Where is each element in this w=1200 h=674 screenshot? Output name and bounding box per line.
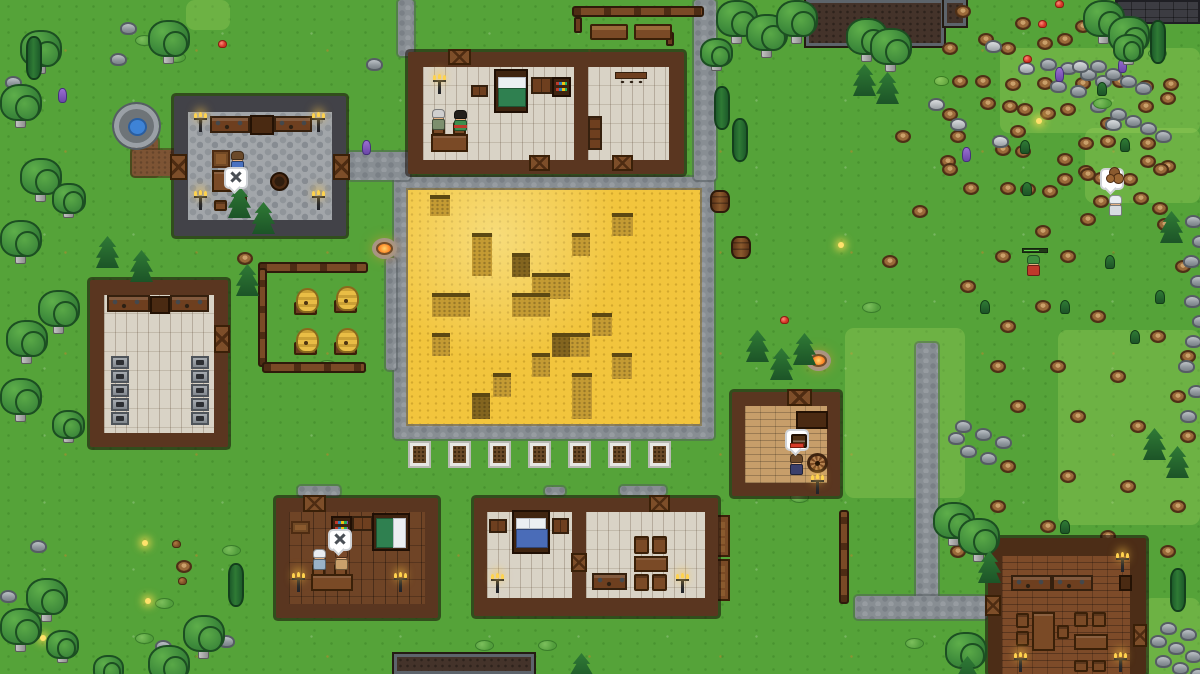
gravel-path (916, 343, 938, 601)
candelabra (811, 474, 824, 494)
firefly-glow (838, 242, 844, 248)
tree-stump[interactable] (995, 250, 1011, 263)
tree-stump[interactable] (1150, 330, 1166, 343)
building-storehouse[interactable] (90, 280, 228, 447)
barrel[interactable] (731, 236, 751, 259)
rock[interactable] (1180, 410, 1197, 423)
tree-canopy (885, 39, 910, 66)
speech-bubble[interactable] (785, 429, 809, 451)
door[interactable] (649, 495, 670, 512)
candelabra (1116, 552, 1129, 572)
rock[interactable] (1185, 335, 1200, 348)
pine-tree[interactable] (770, 348, 793, 380)
rock[interactable] (995, 436, 1012, 449)
tree-canopy (21, 331, 46, 358)
villager[interactable] (431, 109, 446, 130)
bush (222, 545, 241, 556)
tree-stump[interactable] (1152, 202, 1168, 215)
door[interactable] (303, 495, 326, 512)
chair (1092, 612, 1106, 627)
tree-stump[interactable] (882, 255, 898, 268)
tree-stump[interactable] (1170, 500, 1186, 513)
sapling (1155, 290, 1165, 304)
tree[interactable] (0, 220, 38, 264)
candelabra-arm (312, 196, 325, 198)
tree-stump[interactable] (1090, 310, 1106, 323)
rock[interactable] (1140, 122, 1157, 135)
shelf (250, 115, 274, 135)
rock[interactable] (955, 420, 972, 433)
candelabra-arm (194, 118, 207, 120)
candle-flame (438, 74, 441, 79)
tree-stump[interactable] (952, 75, 968, 88)
candelabra-stem (496, 580, 499, 593)
rock[interactable] (120, 22, 137, 35)
speech-bubble[interactable] (224, 167, 248, 189)
furnace-slot (196, 402, 204, 407)
harvested-patch[interactable] (472, 393, 490, 419)
harvested-patch[interactable] (612, 213, 633, 236)
tree[interactable] (0, 608, 38, 652)
harvested-patch[interactable] (512, 293, 550, 317)
cabinet (352, 516, 373, 531)
tree-stump[interactable] (1180, 430, 1196, 443)
candelabra (1014, 652, 1027, 672)
villager[interactable] (1108, 195, 1123, 216)
tree-stump[interactable] (1040, 520, 1056, 533)
rock[interactable] (960, 445, 977, 458)
candelabra-stem (816, 481, 819, 494)
rock[interactable] (1184, 295, 1200, 308)
game-map[interactable] (0, 0, 1200, 674)
tree-stump[interactable] (1080, 168, 1096, 181)
campfire-flame (378, 244, 391, 253)
rock[interactable] (1018, 62, 1035, 75)
mushroom (1038, 20, 1047, 28)
villager-body (790, 464, 803, 475)
tree-stump[interactable] (1002, 100, 1018, 113)
tree-stump[interactable] (1060, 103, 1076, 116)
tree-stump[interactable] (237, 252, 253, 265)
harvested-patch[interactable] (612, 353, 632, 379)
tree-stump[interactable] (1005, 78, 1021, 91)
beehive[interactable] (334, 286, 357, 313)
villager-hair (432, 109, 445, 118)
tree-stump[interactable] (1037, 37, 1053, 50)
door[interactable] (170, 154, 187, 180)
tree[interactable] (183, 615, 221, 659)
villager-body (313, 559, 326, 570)
well[interactable] (114, 104, 159, 148)
barrel (292, 196, 308, 212)
beehive[interactable] (294, 288, 317, 315)
villager-hair (1027, 255, 1040, 264)
tree[interactable] (0, 378, 38, 422)
pine-tree[interactable] (570, 653, 593, 674)
rock[interactable] (980, 452, 997, 465)
tree-stump[interactable] (1010, 400, 1026, 413)
tree-stump[interactable] (1000, 460, 1016, 473)
tree[interactable] (52, 410, 81, 443)
chair (1016, 631, 1029, 646)
rock[interactable] (1190, 275, 1200, 288)
door[interactable] (1133, 624, 1147, 647)
rock[interactable] (948, 432, 965, 445)
planter-soil (719, 564, 725, 596)
pine-tree[interactable] (793, 333, 816, 365)
tree-stump[interactable] (1057, 153, 1073, 166)
tree-stump[interactable] (1070, 410, 1086, 423)
candle-flame (317, 112, 320, 117)
cypress-tree[interactable] (1150, 20, 1166, 64)
tree-stump[interactable] (1100, 135, 1116, 148)
door[interactable] (214, 325, 230, 353)
candelabra-arm (1116, 558, 1129, 560)
chair (1092, 660, 1106, 672)
planter-soil (719, 520, 725, 552)
rock[interactable] (975, 428, 992, 441)
building-cottage-a[interactable] (276, 498, 438, 618)
tree-stump[interactable] (942, 42, 958, 55)
fencev (258, 268, 267, 367)
speech-bubble[interactable] (1100, 168, 1124, 190)
harvested-patch[interactable] (430, 195, 450, 216)
barrel (749, 416, 769, 435)
seed-tray[interactable] (528, 441, 551, 468)
tree[interactable] (148, 20, 186, 64)
door[interactable] (333, 154, 350, 180)
tree-stump[interactable] (1057, 33, 1073, 46)
gravel-path (398, 0, 414, 56)
cypress-tree[interactable] (228, 563, 244, 607)
barrel (592, 77, 609, 94)
seed-tray[interactable] (648, 441, 671, 468)
barrel[interactable] (710, 190, 730, 213)
tree-stump[interactable] (990, 360, 1006, 373)
tree-canopy (791, 11, 816, 38)
harvested-patch[interactable] (532, 353, 550, 377)
tree-stump[interactable] (1122, 173, 1138, 186)
gravel-path (620, 486, 666, 495)
tree-stump[interactable] (975, 75, 991, 88)
pine-tree[interactable] (876, 72, 899, 104)
rock[interactable] (0, 590, 17, 603)
tree-canopy (15, 231, 40, 258)
mushroom (780, 316, 789, 324)
logs-icon (1106, 174, 1115, 183)
tree[interactable] (870, 28, 908, 72)
table (311, 574, 353, 591)
seed-tray-soil (413, 446, 426, 463)
seed-tray[interactable] (608, 441, 631, 468)
seed-tray[interactable] (448, 441, 471, 468)
fenceh (258, 262, 368, 273)
tree-stump[interactable] (1000, 182, 1016, 195)
harvested-patch[interactable] (472, 233, 492, 276)
pine-tree[interactable] (746, 330, 769, 362)
tree-stump[interactable] (1050, 360, 1066, 373)
cypress-tree[interactable] (1170, 568, 1186, 612)
harvested-patch[interactable] (432, 293, 470, 317)
building-cottage-b[interactable] (474, 498, 718, 616)
villager-body (1027, 265, 1040, 276)
tree-stump[interactable] (895, 130, 911, 143)
villager[interactable] (1026, 255, 1041, 276)
tree-stump[interactable] (942, 163, 958, 176)
door[interactable] (448, 49, 471, 65)
harvested-patch[interactable] (592, 313, 612, 336)
rock[interactable] (928, 98, 945, 111)
rock[interactable] (1150, 635, 1167, 648)
rock[interactable] (1105, 118, 1122, 131)
chair (634, 574, 649, 591)
tree-stump[interactable] (1060, 250, 1076, 263)
rock[interactable] (1155, 655, 1172, 668)
harvested-patch[interactable] (572, 233, 590, 256)
excavated-ground[interactable] (394, 654, 534, 674)
tree-stump[interactable] (963, 182, 979, 195)
tree-canopy (163, 31, 188, 58)
door[interactable] (787, 389, 812, 406)
furnace (191, 384, 209, 397)
tree[interactable] (776, 0, 814, 44)
table (1074, 634, 1108, 650)
tree-stump[interactable] (1140, 137, 1156, 150)
tree[interactable] (93, 655, 120, 674)
bush (475, 640, 494, 651)
campfire[interactable] (372, 238, 397, 259)
coatrack (615, 72, 647, 87)
tree-stump[interactable] (990, 500, 1006, 513)
tree-stump[interactable] (912, 205, 928, 218)
beehive[interactable] (334, 328, 357, 355)
candelabra (292, 572, 305, 592)
harvested-patch[interactable] (552, 333, 570, 357)
furnace (191, 412, 209, 425)
counter (274, 116, 312, 132)
tree-stump[interactable] (1040, 107, 1056, 120)
tree-stump[interactable] (1080, 213, 1096, 226)
rock[interactable] (366, 58, 383, 71)
tree-stump[interactable] (1042, 185, 1058, 198)
candelabra-arm (194, 196, 207, 198)
book-row (556, 82, 567, 85)
tree-stump[interactable] (176, 560, 192, 573)
rock[interactable] (1155, 130, 1172, 143)
rock[interactable] (1178, 360, 1195, 373)
rock[interactable] (1185, 650, 1200, 663)
rock[interactable] (1192, 315, 1200, 328)
rock[interactable] (1192, 235, 1200, 248)
sapling (1097, 82, 1107, 96)
barrel (749, 455, 769, 473)
tree-stump[interactable] (1035, 300, 1051, 313)
mushroom (178, 577, 187, 585)
tree-stump[interactable] (1160, 545, 1176, 558)
harvested-patch[interactable] (572, 373, 592, 419)
rock[interactable] (1040, 58, 1057, 71)
tree-stump[interactable] (1133, 192, 1149, 205)
pine-tree[interactable] (96, 236, 119, 268)
door[interactable] (529, 155, 550, 171)
rock[interactable] (110, 53, 127, 66)
candelabra-stem (399, 579, 402, 592)
counter (1052, 575, 1093, 591)
candelabra (312, 190, 325, 210)
door[interactable] (612, 155, 633, 171)
rock[interactable] (1190, 668, 1200, 674)
tree-stump[interactable] (1170, 390, 1186, 403)
slime[interactable] (934, 76, 949, 86)
rock[interactable] (1180, 628, 1197, 641)
rock[interactable] (1160, 622, 1177, 635)
pine-tree[interactable] (236, 264, 259, 296)
tree-stump[interactable] (1078, 137, 1094, 150)
rock[interactable] (992, 135, 1009, 148)
tree-stump[interactable] (1153, 163, 1169, 176)
villager-hair (790, 454, 803, 463)
tree-stump[interactable] (1160, 92, 1176, 105)
rock[interactable] (1090, 60, 1107, 73)
harvested-patch[interactable] (493, 373, 511, 397)
tree[interactable] (700, 38, 729, 71)
tree-stump[interactable] (1120, 480, 1136, 493)
barrel (1009, 553, 1027, 571)
tree-stump[interactable] (1000, 320, 1016, 333)
rock[interactable] (1168, 642, 1185, 655)
furnace (111, 398, 129, 411)
harvested-patch[interactable] (432, 333, 450, 356)
tree-stump[interactable] (980, 97, 996, 110)
candelabra-arm (312, 118, 325, 120)
tree[interactable] (1113, 34, 1140, 65)
building-farmhouse[interactable] (408, 52, 684, 174)
tree-stump[interactable] (1060, 470, 1076, 483)
rock[interactable] (1135, 82, 1152, 95)
candelabra-stem (199, 197, 202, 210)
cypress-tree[interactable] (732, 118, 748, 162)
chair (652, 536, 667, 554)
cabinet (471, 85, 488, 97)
tree-stump[interactable] (960, 280, 976, 293)
tree[interactable] (52, 183, 82, 218)
harvested-patch[interactable] (570, 333, 590, 357)
villager[interactable] (789, 454, 804, 475)
candelabra-arm (292, 578, 305, 580)
tree-stump[interactable] (1163, 78, 1179, 91)
tree-stump[interactable] (1138, 100, 1154, 113)
tree-stump[interactable] (1093, 195, 1109, 208)
seed-tray-soil (533, 446, 546, 463)
bench[interactable] (634, 24, 672, 40)
rock[interactable] (1188, 385, 1200, 398)
tree-stump[interactable] (1130, 420, 1146, 433)
seed-tray[interactable] (568, 441, 591, 468)
wheat-field[interactable] (408, 190, 700, 424)
pine-tree[interactable] (1160, 211, 1183, 243)
shelf (150, 296, 170, 314)
tree-canopy (15, 619, 40, 646)
chair (652, 574, 667, 591)
tree-canopy (198, 626, 223, 653)
fenceh (572, 6, 704, 17)
rock[interactable] (1070, 85, 1087, 98)
candelabra (394, 572, 407, 592)
seed-tray[interactable] (488, 441, 511, 468)
post (574, 17, 582, 33)
seed-tray[interactable] (408, 441, 431, 468)
shelf (1119, 575, 1132, 591)
tree[interactable] (46, 630, 75, 663)
tree[interactable] (0, 84, 38, 128)
candelabra-arm (394, 578, 407, 580)
rock[interactable] (1172, 662, 1189, 674)
coat-rack-bar (615, 72, 647, 79)
villager[interactable] (453, 110, 468, 131)
furnace-slot (196, 360, 204, 365)
cypress-tree[interactable] (26, 36, 42, 80)
candelabra-stem (681, 580, 684, 593)
tree-canopy (41, 589, 66, 616)
rock[interactable] (1072, 60, 1089, 73)
candle-flame (1019, 652, 1022, 657)
tree-stump[interactable] (1000, 42, 1016, 55)
tree-stump[interactable] (1010, 125, 1026, 138)
rock[interactable] (1183, 255, 1200, 268)
furnace (111, 384, 129, 397)
book-row (556, 88, 567, 91)
tree-canopy (973, 529, 998, 556)
sapling (980, 300, 990, 314)
furnace-slot (116, 374, 124, 379)
tree[interactable] (148, 645, 186, 674)
harvested-patch[interactable] (512, 253, 530, 277)
pine-tree[interactable] (130, 250, 153, 282)
candle-flame (816, 474, 819, 479)
beehive[interactable] (294, 328, 317, 355)
door[interactable] (571, 553, 587, 572)
furnace (191, 370, 209, 383)
building-great-hall[interactable] (988, 538, 1146, 674)
candle-flame (1119, 652, 1122, 657)
tree[interactable] (6, 320, 44, 364)
cypress-tree[interactable] (714, 86, 730, 130)
bench[interactable] (590, 24, 628, 40)
villager[interactable] (312, 549, 327, 570)
rock[interactable] (950, 118, 967, 131)
tree-stump[interactable] (955, 5, 971, 18)
rock[interactable] (30, 540, 47, 553)
bush (862, 302, 881, 313)
speech-bubble[interactable] (328, 529, 352, 551)
tree-stump[interactable] (1015, 17, 1031, 30)
rock[interactable] (1185, 215, 1200, 228)
tree-stump[interactable] (1017, 103, 1033, 116)
fencev (839, 510, 849, 604)
tree-stump[interactable] (1057, 173, 1073, 186)
task-progress-bar (790, 443, 804, 448)
tree-stump[interactable] (1110, 370, 1126, 383)
bed (494, 69, 528, 113)
tree-stump[interactable] (1035, 225, 1051, 238)
candle-flame (1121, 552, 1124, 557)
tree-stump[interactable] (950, 130, 966, 143)
tree-canopy (15, 95, 40, 122)
candelabra-stem (297, 579, 300, 592)
door[interactable] (985, 595, 1001, 616)
rock[interactable] (985, 40, 1002, 53)
bush (155, 598, 174, 609)
